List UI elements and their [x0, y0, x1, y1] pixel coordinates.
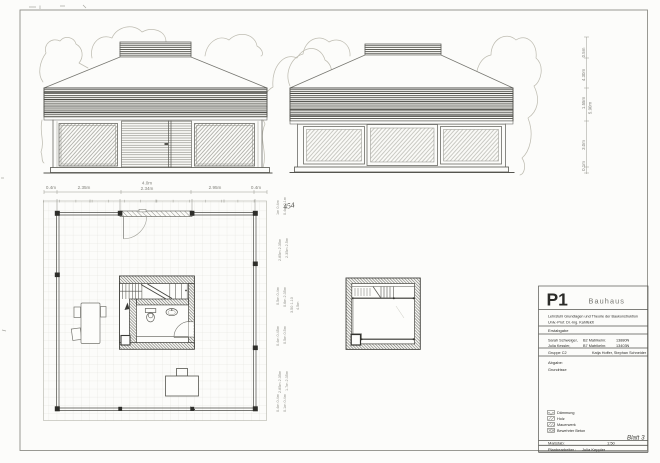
- svg-text:0.4m: 0.4m: [46, 185, 56, 190]
- svg-text:Bauhaus: Bauhaus: [589, 297, 626, 306]
- svg-text:B2 Matrikelnr.: B2 Matrikelnr.: [583, 339, 606, 343]
- svg-text:1:50: 1:50: [607, 440, 616, 445]
- svg-text:0.4m: 0.4m: [251, 185, 261, 190]
- svg-text:2.95m: 2.95m: [209, 185, 222, 190]
- svg-text:Bewehrter Beton: Bewehrter Beton: [557, 429, 585, 433]
- svg-text:Maßstab:: Maßstab:: [548, 440, 565, 445]
- svg-text:3.50 1.10: 3.50 1.10: [290, 297, 294, 313]
- svg-text:5.90m: 5.90m: [588, 102, 593, 115]
- svg-text:2.85m 2.35m: 2.85m 2.35m: [278, 371, 282, 393]
- svg-text:Erstabgabe: Erstabgabe: [548, 328, 569, 333]
- svg-text:Lehrstuhl Grundlagen und Theor: Lehrstuhl Grundlagen und Theorie der Bau…: [548, 315, 638, 319]
- svg-text:4.0m: 4.0m: [142, 181, 152, 186]
- svg-text:13403N: 13403N: [616, 344, 630, 348]
- svg-text:P1: P1: [547, 290, 569, 310]
- svg-text:Katja Hoffer, Stephan Schneide: Katja Hoffer, Stephan Schneider: [592, 351, 647, 355]
- svg-text:2.85m 2.35m: 2.85m 2.35m: [278, 239, 282, 261]
- svg-text:0.1m 0.4m: 0.1m 0.4m: [283, 394, 287, 412]
- svg-text:0.5m 0.4m: 0.5m 0.4m: [276, 287, 280, 305]
- svg-text:Dämmung: Dämmung: [557, 411, 575, 415]
- svg-text:Julia Keppler: Julia Keppler: [582, 447, 606, 452]
- svg-text:Univ.-Prof. Dr.-Ing. Kahlfeldt: Univ.-Prof. Dr.-Ing. Kahlfeldt: [548, 321, 594, 325]
- svg-text:0.5m 0.5m: 0.5m 0.5m: [283, 326, 287, 344]
- svg-text:0.1m: 0.1m: [581, 161, 586, 171]
- svg-text:1.7m 2.35m: 1.7m 2.35m: [285, 371, 289, 391]
- svg-text:Holz: Holz: [557, 417, 565, 421]
- svg-text:Planbearbeiter :: Planbearbeiter :: [548, 447, 576, 452]
- svg-text:0.6m 2.35m: 0.6m 2.35m: [283, 287, 287, 307]
- svg-text:Gruppe C2: Gruppe C2: [548, 351, 567, 355]
- svg-text:0.4m 0.45m: 0.4m 0.45m: [276, 326, 280, 346]
- svg-text:B7 Matrikelnr.: B7 Matrikelnr.: [583, 344, 606, 348]
- svg-text:Mauerwerk: Mauerwerk: [557, 423, 576, 427]
- svg-text:2.35m 2.5m: 2.35m 2.5m: [285, 238, 289, 258]
- svg-text:4.30m: 4.30m: [581, 69, 586, 82]
- svg-text:13880N: 13880N: [616, 339, 630, 343]
- svg-text:Grundrisse: Grundrisse: [548, 368, 567, 372]
- svg-text:Julia Kessler,: Julia Kessler,: [548, 344, 570, 348]
- svg-text:Blatt 3: Blatt 3: [627, 435, 645, 442]
- svg-text:4.5m: 4.5m: [296, 302, 300, 310]
- svg-text:0.4m 0.4m: 0.4m 0.4m: [276, 394, 280, 412]
- svg-text:2.34m: 2.34m: [141, 186, 154, 191]
- svg-text:1.55m: 1.55m: [581, 97, 586, 110]
- svg-text:3.0m: 3.0m: [581, 140, 586, 150]
- svg-text:2.35m: 2.35m: [78, 185, 91, 190]
- svg-text:Abgabe:: Abgabe:: [548, 360, 563, 365]
- svg-text:0.5m: 0.5m: [581, 47, 586, 57]
- svg-text:Sarah Schweiger,: Sarah Schweiger,: [548, 339, 578, 343]
- svg-text:1m 0.4m: 1m 0.4m: [276, 200, 280, 215]
